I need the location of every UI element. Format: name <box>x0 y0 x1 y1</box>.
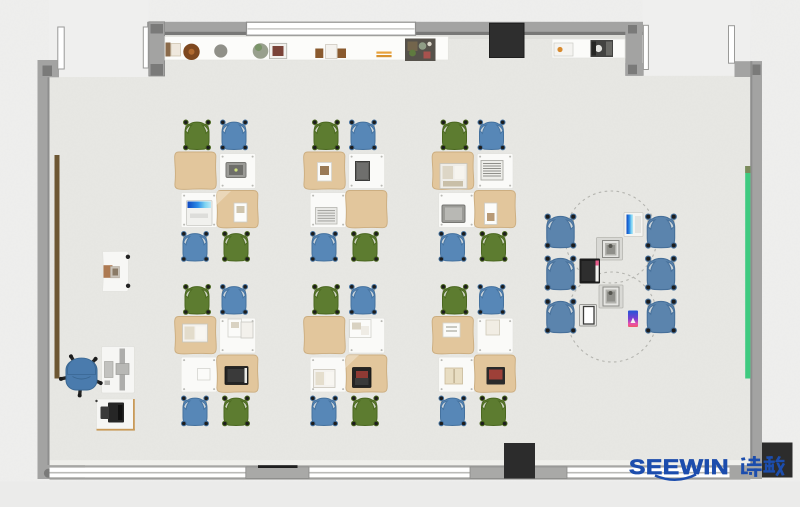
svg-text:SEEWIN: SEEWIN <box>629 455 729 479</box>
